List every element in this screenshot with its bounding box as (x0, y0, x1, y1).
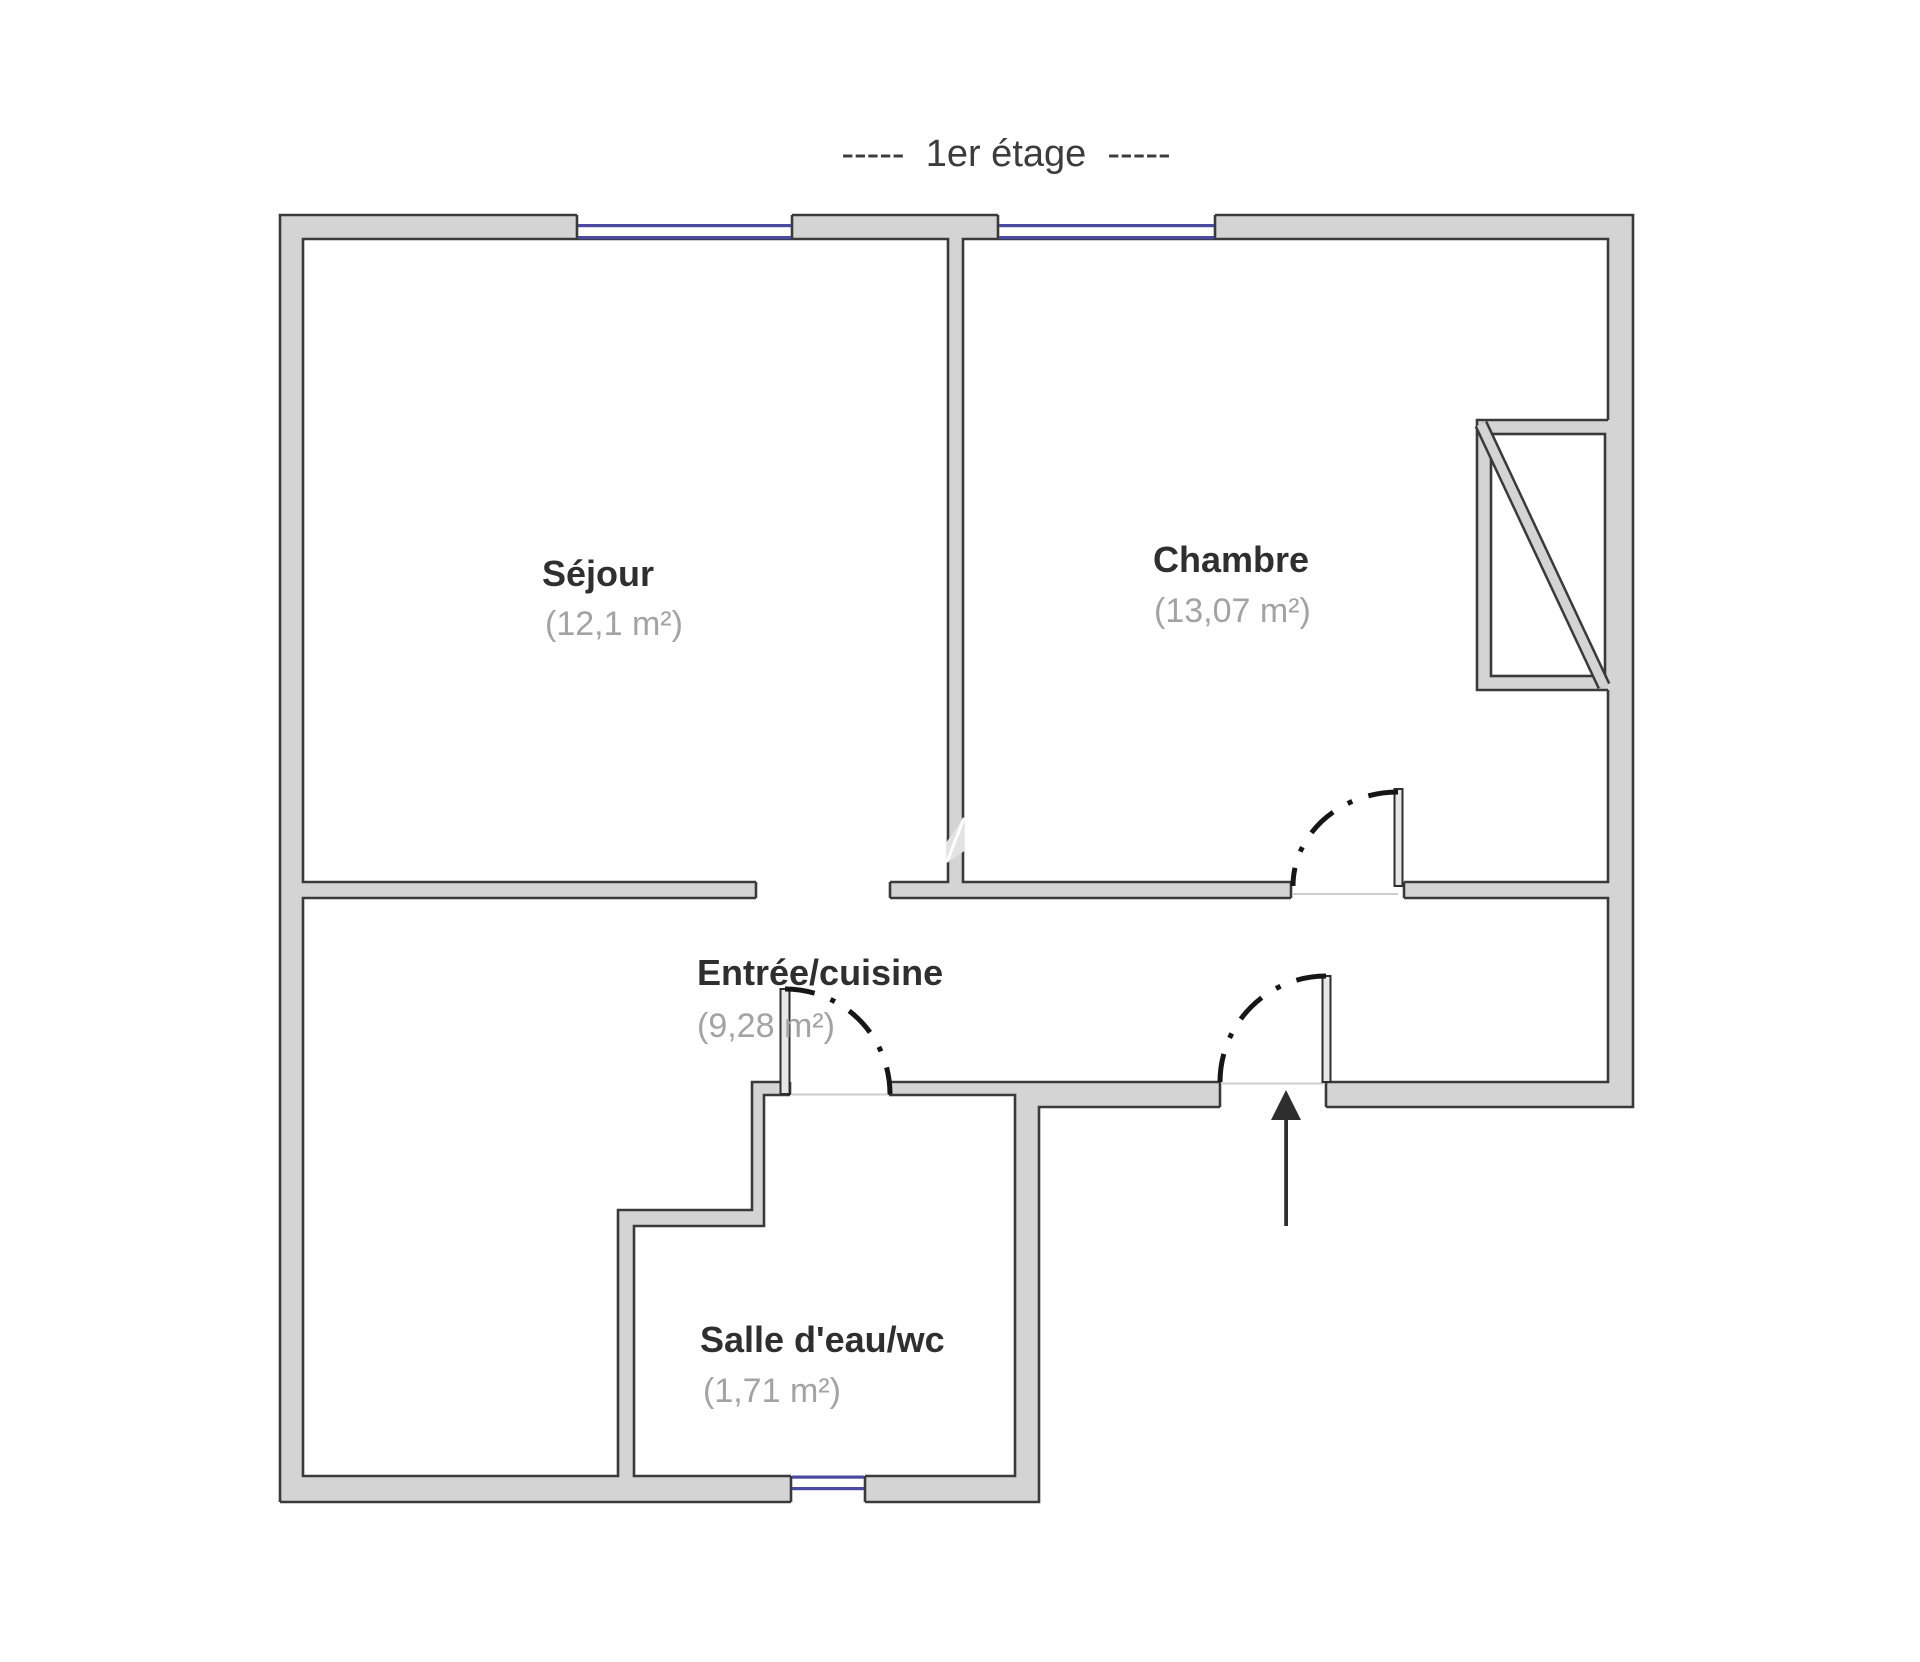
svg-text:----- 1er étage -----: ----- 1er étage ----- (841, 133, 1170, 175)
svg-text:Entrée/cuisine: Entrée/cuisine (697, 952, 943, 993)
svg-text:(12,1 m²): (12,1 m²) (545, 605, 683, 643)
svg-text:(9,28 m²): (9,28 m²) (697, 1007, 835, 1045)
svg-text:Salle d'eau/wc: Salle d'eau/wc (700, 1319, 945, 1360)
svg-text:(1,71 m²): (1,71 m²) (703, 1372, 841, 1410)
svg-text:Chambre: Chambre (1153, 539, 1309, 580)
svg-text:(13,07 m²): (13,07 m²) (1154, 592, 1311, 630)
svg-text:Séjour: Séjour (542, 553, 654, 594)
